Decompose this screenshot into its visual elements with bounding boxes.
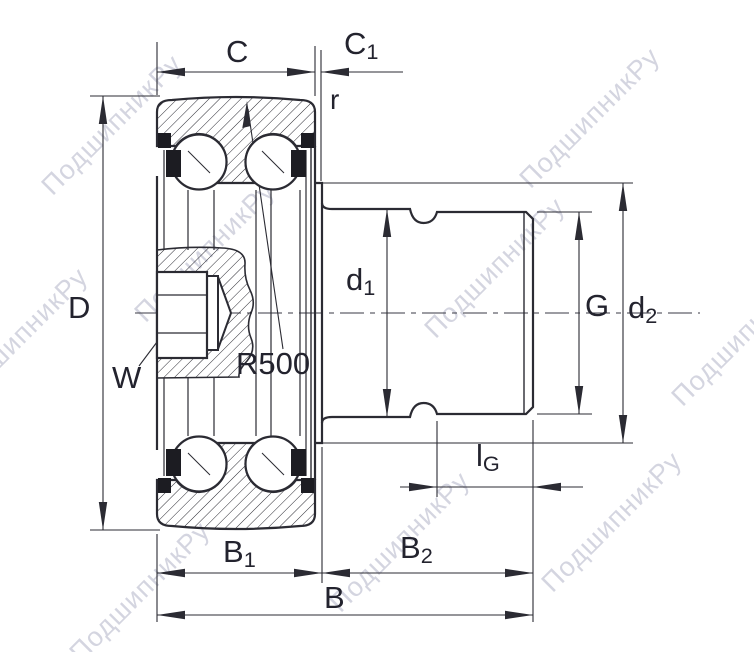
dim-label-G: G: [585, 290, 609, 324]
dim-label-C: C: [226, 36, 248, 70]
bearing-technical-drawing: ПодшипникРу ПодшипникРу ПодшипникРу Подш…: [0, 0, 754, 652]
dim-label-B: B: [324, 582, 345, 616]
dim-label-d2: d2: [628, 292, 657, 326]
dim-label-C1: C1: [344, 28, 378, 62]
dim-label-D: D: [68, 292, 90, 326]
dim-label-R500: R500: [236, 348, 310, 382]
dim-label-B1: B1: [223, 536, 256, 570]
dim-label-B2: B2: [400, 532, 433, 566]
dim-label-W: W: [112, 362, 141, 396]
dim-label-d1: d1: [346, 264, 375, 298]
dim-label-lG: lG: [476, 440, 500, 474]
dim-label-r: r: [330, 86, 339, 118]
